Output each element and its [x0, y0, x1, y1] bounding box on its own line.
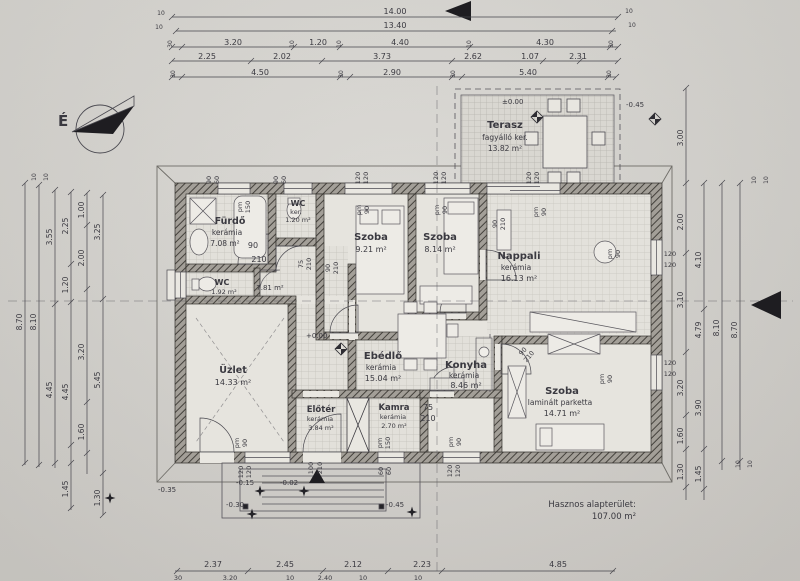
parapet-height: 90: [241, 439, 249, 447]
parapet-label: pm: [532, 207, 540, 217]
survey-point: [299, 486, 310, 497]
level-value: -0.30: [226, 501, 244, 509]
room-name: Szoba: [423, 232, 457, 243]
door-size: 75: [423, 403, 433, 412]
footer-value: 107.00 m²: [592, 512, 636, 522]
dim: 30: [450, 70, 457, 78]
window-size: 60: [280, 176, 288, 184]
room-area: 1.92 m²: [211, 288, 237, 296]
door-size: 210: [332, 262, 340, 274]
room-name: WC: [291, 199, 306, 208]
parapet-label: pm: [376, 438, 384, 448]
dim: 1.30: [93, 489, 102, 506]
dim: 10: [289, 40, 296, 48]
room-material: kerámia: [449, 371, 479, 380]
room-name: Fürdő: [215, 216, 246, 227]
dim: 30: [608, 40, 615, 48]
room-name: Konyha: [445, 360, 487, 371]
dim: 1.20: [309, 38, 327, 47]
dim: 2.62: [464, 52, 482, 61]
footer-label: Hasznos alapterület:: [548, 500, 636, 510]
floor-plan-drawing: É 14.00 13.40 3.20 1.20 4.40 4.30 30 10 …: [0, 0, 800, 581]
dim: 1.45: [694, 465, 703, 482]
door-size: 75: [297, 260, 305, 268]
door-size: 90: [491, 220, 499, 228]
dim: 4.79: [694, 321, 703, 338]
level-marker: [649, 113, 661, 125]
room-area: 13.82 m²: [488, 144, 522, 153]
dim: 10: [43, 173, 50, 181]
dim: 4.50: [251, 68, 269, 77]
dim: 4.30: [536, 38, 554, 47]
room-name: Szoba: [545, 386, 579, 397]
dim: 2.45: [276, 560, 294, 569]
parapet-height: 90: [363, 206, 371, 214]
dim: 10: [336, 40, 343, 48]
dim: 1.00: [77, 201, 86, 218]
dim: 1.07: [521, 52, 539, 61]
dim: 8.10: [712, 319, 721, 336]
level-value: -0.45: [626, 101, 644, 109]
bottom-dimension-labels: 2.37 2.45 2.12 2.23 4.85 30 3.20 10 2.40…: [174, 560, 567, 581]
window-size: 120: [664, 359, 676, 367]
parapet-label: pm: [606, 249, 614, 259]
dim: 3.25: [93, 223, 102, 240]
room-name: Üzlet: [219, 365, 247, 376]
room-area: 8.46 m²: [450, 381, 481, 390]
room-area: 16.13 m²: [501, 274, 537, 283]
parapet-label: pm: [233, 438, 241, 448]
room-name: Nappali: [497, 251, 540, 262]
dim: 8.10: [29, 313, 38, 330]
window-size: 60: [213, 176, 221, 184]
window-size: 60: [377, 467, 385, 475]
dim: 10: [751, 176, 758, 184]
dim: 3.00: [676, 129, 685, 146]
room-area: 15.04 m²: [365, 374, 401, 383]
parapet-height: 90: [455, 438, 463, 446]
dim-total-width: 14.00: [384, 7, 407, 16]
room-material: kerámia: [307, 415, 333, 423]
room-material: kerámia: [501, 263, 531, 272]
dim: 1.20: [61, 276, 70, 293]
level-value: -0.45: [386, 501, 404, 509]
room-name: Ebédlő: [364, 350, 402, 362]
section-arrow-right: [751, 291, 781, 319]
dim: 4.45: [61, 383, 70, 400]
floor-plan-sheet: { "sheet": { "footer_label": "Hasznos al…: [0, 0, 800, 581]
room-material: kerámia: [212, 228, 242, 237]
door-size: 210: [420, 414, 435, 423]
dim: 10: [359, 574, 367, 581]
dim: 30: [167, 40, 174, 48]
north-label: É: [58, 111, 68, 130]
window-size: 120: [454, 465, 462, 477]
parapet-label: pm: [447, 437, 455, 447]
room-label-kamra: Kamra kerámia 2.70 m²: [378, 403, 409, 430]
dim: 3.20: [224, 38, 242, 47]
footer-area-summary: Hasznos alapterület: 107.00 m²: [548, 500, 636, 522]
room-area: 8.14 m²: [424, 245, 455, 254]
dim: 30: [170, 70, 177, 78]
section-arrow-top: [445, 1, 471, 21]
dim: 3.55: [45, 228, 54, 245]
dim: 10: [414, 574, 422, 581]
dim: 2.23: [413, 560, 431, 569]
door-size: 100: [307, 462, 315, 474]
dim: 30: [174, 574, 182, 581]
survey-point: [105, 493, 116, 504]
dim: 4.40: [391, 38, 409, 47]
dim: 10: [747, 460, 754, 468]
room-material: laminált parketta: [528, 398, 592, 407]
door-size: 210: [499, 218, 507, 230]
dim: 30: [338, 70, 345, 78]
door-size: 210: [251, 255, 266, 264]
duct-shaft: [347, 398, 369, 452]
door-size: 90: [248, 241, 258, 250]
window-size: 120: [533, 172, 541, 184]
window-size: 120: [664, 261, 676, 269]
window-size: 120: [362, 172, 370, 184]
room-area: 9.21 m²: [355, 245, 386, 254]
dim: 5.45: [93, 371, 102, 388]
room-area: 7.08 m²: [210, 239, 239, 248]
room-label-terasz: Terasz fagyálló ker. 13.82 m²: [482, 120, 528, 153]
dim: 10: [31, 173, 38, 181]
dim: 8.70: [730, 321, 739, 338]
dim: 10: [157, 10, 165, 17]
room-area: 14.33 m²: [215, 378, 251, 387]
parapet-label: pm: [355, 205, 363, 215]
dim: 2.02: [273, 52, 291, 61]
parapet-height: 150: [244, 201, 252, 213]
north-compass-icon: É: [58, 96, 134, 153]
top-dimension-labels: 14.00 13.40 3.20 1.20 4.40 4.30 30 10 10…: [155, 7, 636, 78]
right-dimension-chain: [683, 85, 743, 500]
parapet-height: 150: [384, 437, 392, 449]
parapet-label: pm: [598, 374, 606, 384]
window-size: 90: [205, 176, 213, 184]
dim: 10: [286, 574, 294, 581]
level-value: -0.15: [236, 479, 254, 487]
room-name: Kamra: [378, 403, 409, 413]
window-size: 120: [440, 172, 448, 184]
window-size: 120: [664, 370, 676, 378]
survey-point: [407, 507, 418, 518]
dim: 10: [735, 460, 742, 468]
door-size: 90: [324, 264, 332, 272]
dim: 3.20: [223, 574, 237, 581]
dim: 8.70: [15, 313, 24, 330]
room-area: 14.71 m²: [544, 409, 580, 418]
room-area: 3.84 m²: [308, 424, 334, 432]
window-size: 120: [446, 465, 454, 477]
room-name: Szoba: [354, 232, 388, 243]
dim: 2.25: [198, 52, 216, 61]
room-material: kerámia: [380, 413, 406, 421]
window-size: 120: [354, 172, 362, 184]
dim: 1.30: [676, 463, 685, 480]
dim: 4.10: [694, 251, 703, 268]
dim: 30: [606, 70, 613, 78]
parapet-label: pm: [236, 202, 244, 212]
window-size: 120: [237, 466, 245, 478]
survey-point: [255, 486, 266, 497]
parapet-height: 90: [606, 375, 614, 383]
dim: 1.45: [61, 480, 70, 497]
room-area: 2.70 m²: [381, 422, 407, 430]
room-name: WC: [215, 278, 230, 287]
dim: 2.40: [318, 574, 332, 581]
dim: 3.90: [694, 399, 703, 416]
dim: 2.12: [344, 560, 362, 569]
dim: 1.60: [77, 423, 86, 440]
dim: 3.20: [676, 379, 685, 396]
room-area: 1.20 m²: [285, 216, 311, 224]
dim: 2.00: [77, 249, 86, 266]
level-value: +0.00: [306, 332, 327, 340]
dim: 3.20: [77, 343, 86, 360]
level-value: -0.35: [158, 486, 176, 494]
dim: 2.31: [569, 52, 587, 61]
window-size: 120: [525, 172, 533, 184]
level-value: -0.02: [280, 479, 298, 487]
parapet-label: pm: [433, 205, 441, 215]
room-name: Terasz: [487, 120, 523, 131]
dim: 5.40: [519, 68, 537, 77]
dim: 3.73: [373, 52, 391, 61]
room-label-eloter: Előtér kerámia 3.84 m²: [307, 404, 336, 432]
dim: 10: [466, 40, 473, 48]
parapet-height: 90: [614, 250, 622, 258]
room-material: kerámia: [366, 363, 396, 372]
window-size: 120: [245, 466, 253, 478]
window-size: 90: [272, 176, 280, 184]
room-name: Előtér: [307, 404, 336, 415]
dim-inner-width: 13.40: [384, 21, 407, 30]
parapet-height: 90: [441, 206, 449, 214]
window-size: 60: [385, 467, 393, 475]
parapet-height: 90: [540, 208, 548, 216]
door-size: 210: [316, 462, 324, 474]
dim: 10: [763, 176, 770, 184]
dim: 2.37: [204, 560, 222, 569]
dim: 4.85: [549, 560, 567, 569]
dim: 3.10: [676, 291, 685, 308]
room-material: ker.: [290, 208, 302, 216]
dim: 2.00: [676, 213, 685, 230]
dim: 2.25: [61, 217, 70, 234]
dim: 10: [155, 24, 163, 31]
level-value: ±0.00: [502, 98, 523, 106]
room-label-kozlekedo: 7.81 m²: [256, 284, 284, 292]
dim: 10: [625, 8, 633, 15]
window-size: 120: [664, 250, 676, 258]
door-size: 210: [305, 258, 313, 270]
dim: 10: [628, 22, 636, 29]
dim: 1.60: [676, 427, 685, 444]
room-material: fagyálló ker.: [482, 133, 528, 142]
dim: 4.45: [45, 381, 54, 398]
dim: 2.90: [383, 68, 401, 77]
window-size: 120: [432, 172, 440, 184]
